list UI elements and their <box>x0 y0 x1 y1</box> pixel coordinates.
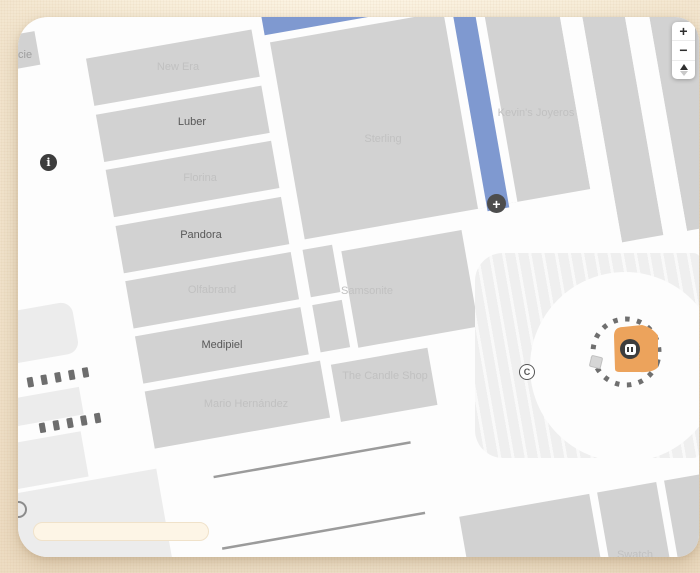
zoom-in-button[interactable]: + <box>672 22 695 40</box>
zoom-out-button[interactable]: − <box>672 40 695 59</box>
store-label-pandora: Pandora <box>180 229 222 241</box>
store-label-olfabrand: Olfabrand <box>188 284 236 296</box>
store-labels-layer: ucieNew EraLuberFlorinaPandoraOlfabrandM… <box>18 17 699 557</box>
store-label-kevins-joyeros: Kevin's Joyeros <box>498 107 575 119</box>
zoom-in-icon: + <box>679 23 687 39</box>
store-label-luber: Luber <box>178 116 206 128</box>
store-label-new-era: New Era <box>157 61 199 73</box>
store-label-florina: Florina <box>183 172 217 184</box>
screen: { "map": { "store_labels": [ {"id":"luci… <box>0 0 700 573</box>
level-down-icon <box>680 71 688 76</box>
store-label-swatch: Swatch <box>617 549 653 557</box>
level-selector-button[interactable] <box>672 60 695 79</box>
store-label-mario-hernandez: Mario Hernández <box>204 398 288 410</box>
store-label-samsonite: Samsonite <box>341 285 393 297</box>
store-label-the-candle-shop: The Candle Shop <box>342 370 428 382</box>
level-up-icon <box>680 64 688 70</box>
map-canvas[interactable]: i + C ucieNew EraLuberFlorinaPandoraOlfa… <box>18 17 699 557</box>
store-label-sterling: Sterling <box>364 133 401 145</box>
store-label-medipiel: Medipiel <box>202 339 243 351</box>
store-label-lucie: ucie <box>18 49 32 61</box>
search-input[interactable] <box>33 522 209 541</box>
zoom-out-icon: − <box>679 42 687 58</box>
map-controls: + − <box>672 22 695 79</box>
